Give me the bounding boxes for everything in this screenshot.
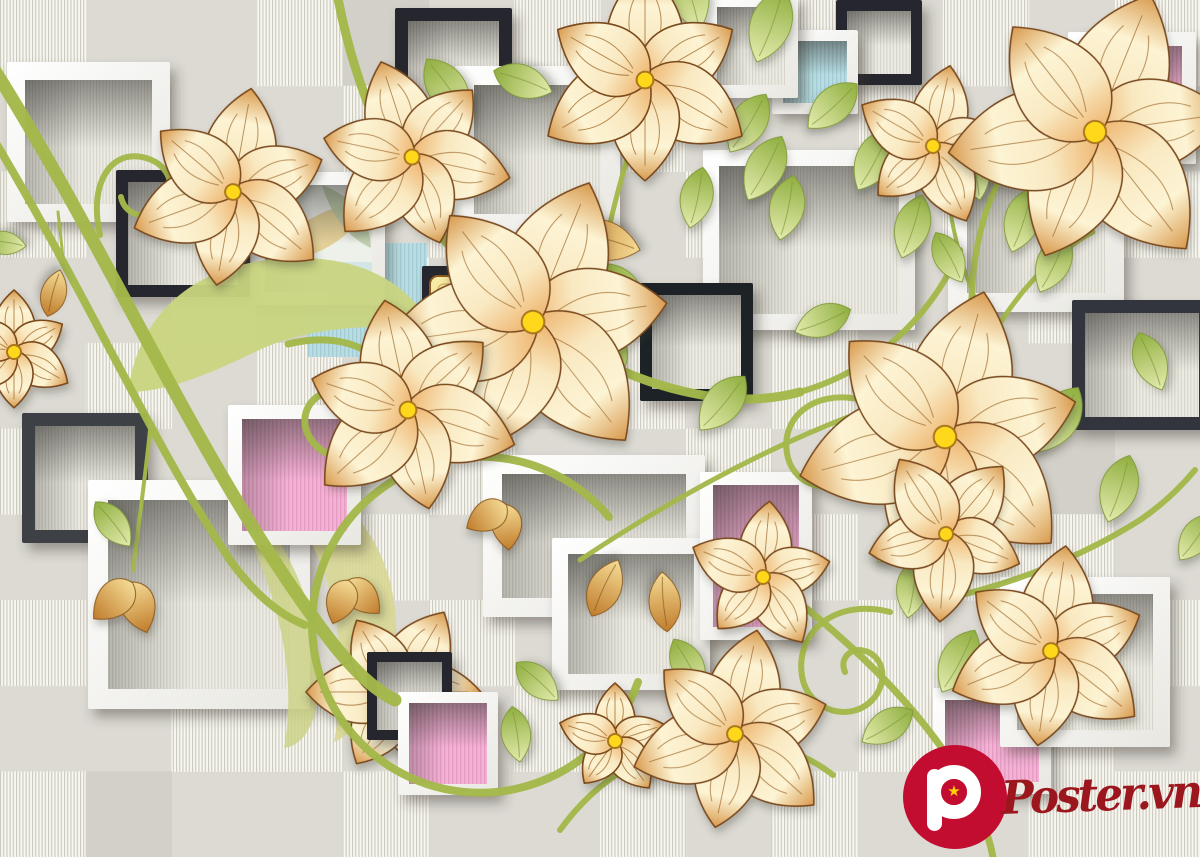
- floral-3d-wallpaper: ★ P Poster.vn: [0, 0, 1200, 857]
- logo-letter: P: [903, 745, 904, 746]
- poster-vn-logo: ★ P Poster.vn: [903, 745, 1200, 849]
- poster-logo-badge: ★ P: [903, 745, 1007, 849]
- logo-dot: ★: [941, 779, 967, 805]
- star-icon: ★: [947, 784, 960, 799]
- poster-logo-wordmark: Poster.vn: [1000, 764, 1200, 825]
- wallpaper-artwork: [0, 0, 1200, 857]
